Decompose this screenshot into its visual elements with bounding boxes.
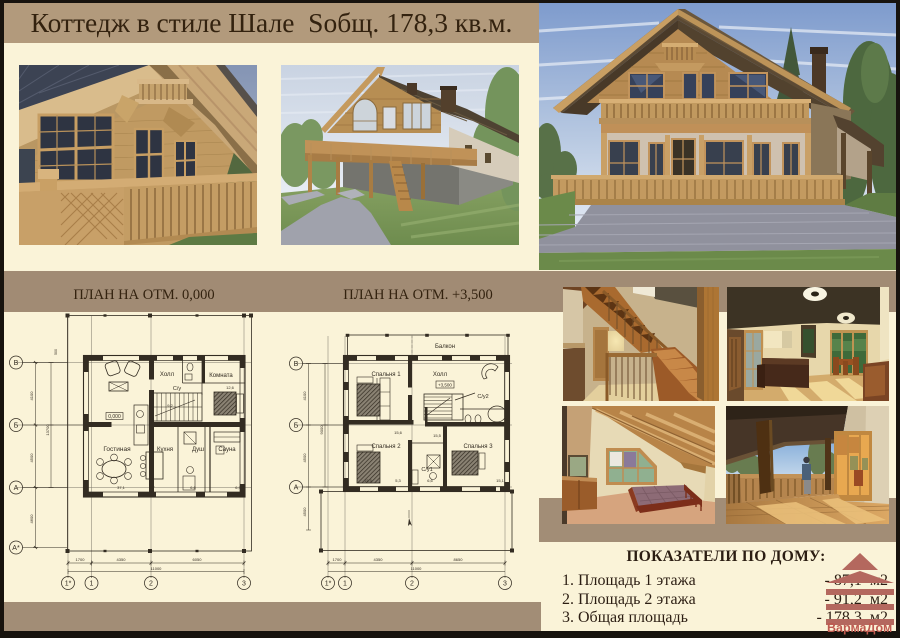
svg-text:Холл: Холл: [160, 372, 175, 378]
svg-text:4600: 4600: [29, 514, 34, 524]
svg-text:5,3: 5,3: [395, 478, 401, 483]
svg-text:1700: 1700: [333, 557, 343, 562]
svg-text:11000: 11000: [151, 566, 163, 571]
svg-text:8,7: 8,7: [149, 485, 155, 490]
svg-text:Холл: Холл: [433, 372, 448, 378]
svg-text:0,000: 0,000: [108, 414, 121, 420]
svg-text:Кухня: Кухня: [157, 447, 173, 453]
svg-text:+3,500: +3,500: [438, 383, 452, 388]
svg-text:15,5: 15,5: [364, 478, 373, 483]
svg-text:Спальня 1: Спальня 1: [371, 372, 401, 378]
svg-text:Б: Б: [294, 422, 299, 429]
svg-text:Спальня 3: Спальня 3: [463, 444, 493, 450]
svg-text:500: 500: [54, 349, 58, 355]
svg-text:1: 1: [343, 580, 347, 587]
svg-text:Комната: Комната: [209, 373, 233, 379]
svg-text:ВармаДом: ВармаДом: [827, 621, 892, 635]
svg-text:4500: 4500: [29, 453, 34, 463]
svg-text:4350: 4350: [374, 557, 384, 562]
svg-text:13700: 13700: [45, 424, 50, 436]
svg-text:6,6: 6,6: [427, 478, 433, 483]
svg-text:1: 1: [90, 580, 94, 587]
svg-text:2: 2: [410, 580, 414, 587]
svg-text:4100: 4100: [29, 391, 34, 401]
svg-text:15,5: 15,5: [433, 433, 442, 438]
svg-text:1700: 1700: [76, 557, 86, 562]
svg-text:4100: 4100: [302, 391, 307, 401]
svg-text:6,6: 6,6: [190, 485, 196, 490]
svg-text:1*: 1*: [325, 580, 332, 587]
svg-text:Балкон: Балкон: [435, 344, 455, 350]
svg-text:9000: 9000: [319, 425, 324, 435]
svg-text:15,6: 15,6: [394, 430, 403, 435]
svg-text:Гостиная: Гостиная: [103, 446, 131, 453]
svg-text:3: 3: [503, 580, 507, 587]
svg-text:4500: 4500: [302, 453, 307, 463]
svg-text:С/у2: С/у2: [477, 394, 488, 400]
svg-text:11000: 11000: [411, 566, 423, 571]
svg-text:37,1: 37,1: [117, 485, 126, 490]
svg-text:А*: А*: [12, 545, 20, 552]
svg-text:2: 2: [149, 580, 153, 587]
svg-text:В: В: [14, 360, 19, 367]
svg-text:А: А: [294, 484, 299, 491]
svg-text:12,6: 12,6: [226, 385, 235, 390]
svg-text:Сауна: Сауна: [218, 447, 236, 453]
svg-text:В: В: [294, 361, 299, 368]
svg-text:Душ: Душ: [192, 447, 204, 453]
svg-text:6,9: 6,9: [235, 485, 241, 490]
svg-text:С/у1: С/у1: [421, 467, 432, 473]
svg-text:6050: 6050: [193, 557, 203, 562]
svg-text:3: 3: [242, 580, 246, 587]
svg-text:15,1: 15,1: [496, 478, 505, 483]
svg-text:1*: 1*: [65, 580, 72, 587]
svg-text:9,2: 9,2: [167, 403, 173, 408]
svg-text:Б: Б: [14, 422, 19, 429]
svg-text:С/у: С/у: [173, 386, 182, 392]
svg-text:А: А: [14, 485, 19, 492]
svg-text:Спальня 2: Спальня 2: [371, 444, 401, 450]
svg-text:4500: 4500: [302, 507, 307, 517]
svg-text:8650: 8650: [454, 557, 464, 562]
svg-text:4350: 4350: [117, 557, 127, 562]
